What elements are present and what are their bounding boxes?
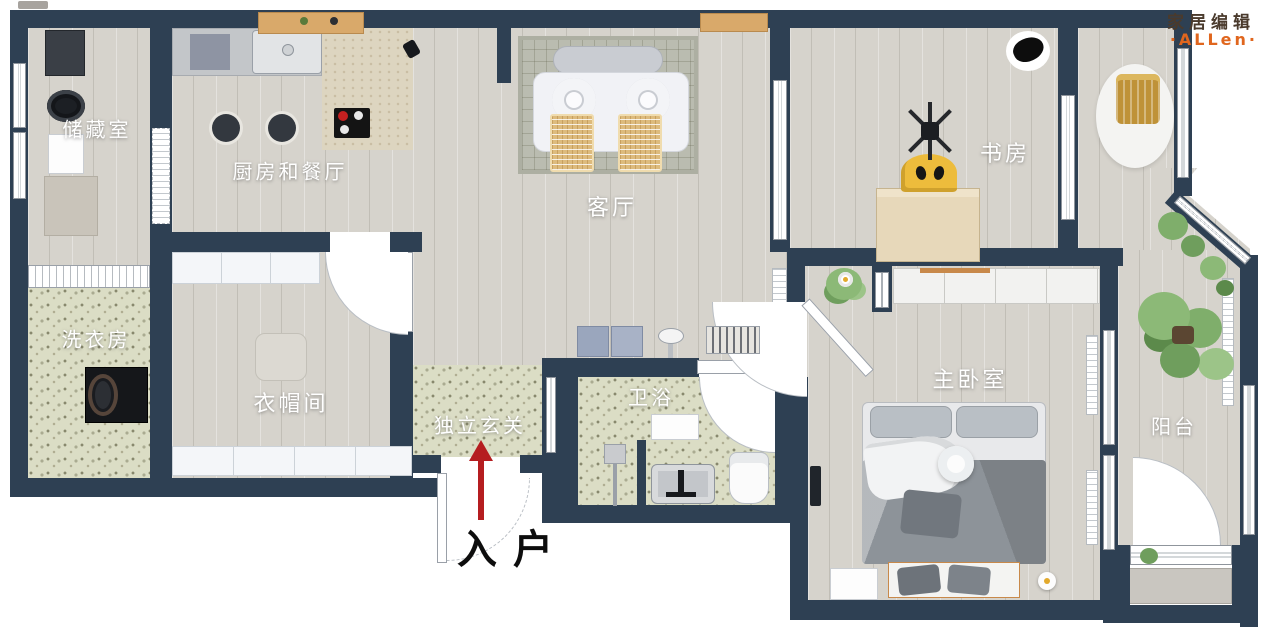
room-label-laundry: 洗衣房 — [62, 324, 131, 353]
room-label-study: 书房 — [980, 136, 1030, 168]
room-label-balcony: 阳台 — [1151, 411, 1197, 440]
window-study-partition — [773, 80, 787, 240]
room-label-storage: 储藏室 — [63, 114, 132, 143]
kitchen-shelf — [258, 12, 364, 34]
bed-pillow — [870, 406, 952, 438]
dining-stool — [212, 114, 240, 142]
study-desk — [876, 188, 980, 262]
window-bedroom-east — [1103, 330, 1115, 445]
window — [13, 132, 26, 199]
closet-ottoman — [255, 333, 307, 381]
bench-pillow — [947, 564, 991, 596]
room-label-closet: 衣帽间 — [253, 386, 328, 418]
curtain — [1086, 470, 1098, 545]
side-cabinet — [706, 326, 760, 354]
curtain — [1086, 335, 1098, 415]
entrance-label: 入户 — [441, 517, 569, 575]
bed-cushion — [900, 489, 962, 539]
planter-diagonal — [1158, 212, 1188, 240]
wall — [790, 600, 1118, 620]
shelf-item — [330, 17, 338, 25]
stove-burner-red — [338, 111, 348, 121]
bathroom-shelf — [651, 414, 699, 440]
window-study-east — [1061, 95, 1075, 220]
living-shelf — [700, 13, 768, 32]
bathroom-partition — [637, 440, 646, 507]
bathroom-lamp-head — [604, 444, 626, 464]
kitchen-cooktop — [190, 34, 230, 70]
bed-pillow — [956, 406, 1038, 438]
ceiling-light-dot — [1044, 578, 1050, 584]
floor-lamp-living — [658, 328, 684, 344]
bench-cushion — [577, 326, 609, 357]
wall — [1103, 605, 1258, 623]
window-corridor-stub — [875, 272, 889, 308]
wardrobe-rail — [920, 268, 990, 273]
balcony-exterior-platform — [1120, 568, 1232, 604]
wall — [542, 505, 793, 523]
kitchen-faucet — [282, 44, 294, 56]
bench-pillow — [897, 564, 942, 596]
wall — [542, 358, 699, 377]
sofa-bolster — [553, 46, 663, 74]
chair-base-hub — [921, 122, 939, 140]
wall — [497, 28, 511, 83]
sink-faucet-bar — [666, 492, 696, 497]
wall — [10, 478, 440, 497]
stove-burner — [340, 125, 349, 134]
sliding-door-storage — [152, 128, 170, 224]
storage-mat — [44, 176, 98, 236]
bathroom-lamp-pole — [613, 464, 617, 506]
bench-cushion — [611, 326, 643, 357]
tree-pot — [1172, 326, 1194, 344]
wall — [790, 377, 808, 620]
window-laundry — [28, 265, 150, 288]
stove-burner — [354, 111, 363, 120]
window — [13, 63, 26, 128]
curtain — [1222, 278, 1234, 406]
wall — [390, 232, 413, 252]
dining-stool — [268, 114, 296, 142]
closet-wardrobe-top — [172, 252, 320, 284]
closet-wardrobe-bottom — [172, 446, 412, 476]
bed-round-lamp — [938, 446, 974, 482]
rattan-chair — [618, 114, 662, 172]
watermark-corner-smudge — [18, 1, 48, 9]
wall — [150, 232, 330, 252]
entrance-arrow-shaft — [478, 458, 484, 520]
window-entry-side — [546, 377, 556, 453]
room-label-entry-hall: 独立玄关 — [434, 410, 526, 439]
wardrobe — [893, 268, 1100, 304]
bedroom-tv — [810, 466, 821, 506]
bedroom-rug — [830, 568, 878, 600]
toilet — [729, 452, 769, 504]
window-sunroom — [1177, 48, 1189, 178]
gold-stool — [1116, 74, 1160, 124]
room-label-bathroom: 卫浴 — [628, 382, 674, 411]
shelf-item — [300, 17, 308, 25]
watermark-line2: ·ALLen· — [1170, 30, 1258, 49]
room-label-kitchen: 厨房和餐厅 — [233, 156, 348, 185]
wall — [10, 10, 1192, 28]
washing-machine-door — [88, 374, 118, 416]
room-label-master-bedroom: 主卧室 — [932, 362, 1007, 394]
balcony-plant-small — [1140, 548, 1158, 564]
window-bedroom-east — [1103, 455, 1115, 550]
rattan-chair — [550, 114, 594, 172]
floor-lamp-stem — [668, 344, 673, 358]
storage-cabinet — [45, 30, 85, 76]
wall — [413, 455, 441, 473]
floor-plan: 储藏室 厨房和餐厅 客厅 书房 洗衣房 衣帽间 独立玄关 卫浴 主卧室 阳台 入… — [0, 0, 1280, 641]
room-label-living: 客厅 — [587, 190, 637, 222]
plant-pot-dot — [843, 277, 848, 282]
window-balcony-east — [1243, 385, 1255, 535]
